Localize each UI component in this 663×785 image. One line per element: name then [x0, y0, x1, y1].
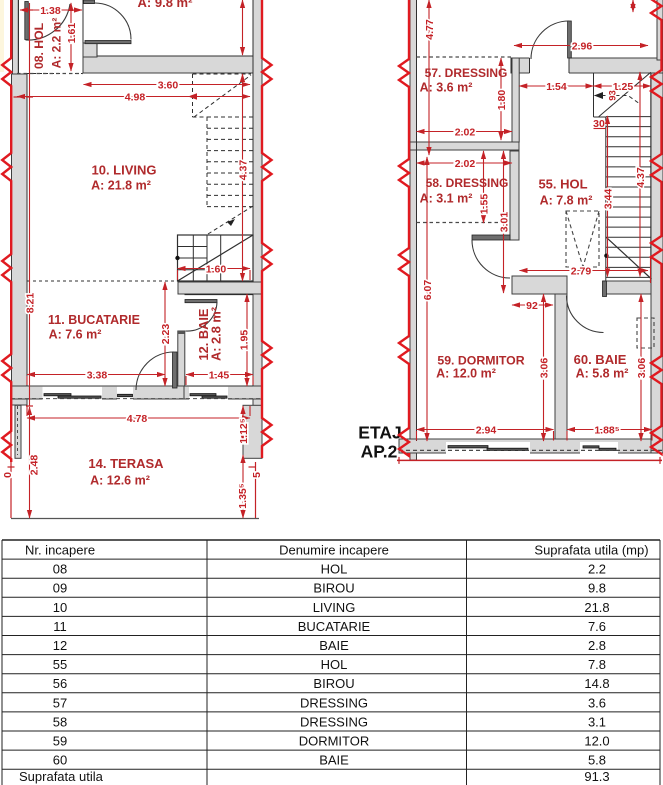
svg-text:1.55: 1.55	[478, 194, 490, 215]
svg-text:A: 21.8 m²: A: 21.8 m²	[91, 179, 151, 193]
svg-text:1.95: 1.95	[238, 330, 250, 351]
svg-text:1.61: 1.61	[66, 23, 78, 44]
svg-text:A: 2.8 m²: A: 2.8 m²	[209, 307, 224, 361]
svg-text:A: 7.6 m²: A: 7.6 m²	[49, 328, 102, 342]
svg-text:3.44: 3.44	[602, 189, 614, 210]
svg-text:Nr. incapere: Nr. incapere	[25, 543, 95, 558]
svg-text:2.23: 2.23	[160, 324, 172, 345]
svg-text:1.80: 1.80	[496, 90, 508, 111]
svg-text:57: 57	[53, 695, 67, 710]
svg-text:A: 2.2 m²: A: 2.2 m²	[49, 18, 63, 69]
svg-text:0: 0	[2, 472, 14, 478]
svg-text:56: 56	[53, 676, 67, 691]
svg-text:2.79: 2.79	[571, 265, 592, 277]
svg-text:ETAJ: ETAJ	[358, 423, 401, 443]
svg-text:2.48: 2.48	[28, 455, 40, 476]
svg-text:3.6: 3.6	[588, 695, 606, 710]
svg-text:12: 12	[53, 638, 67, 653]
svg-text:4.37: 4.37	[635, 167, 647, 188]
svg-text:1.45: 1.45	[209, 369, 230, 381]
svg-text:1.35⁵: 1.35⁵	[237, 483, 249, 508]
svg-text:08: 08	[53, 562, 67, 577]
svg-text:BIROU: BIROU	[313, 676, 354, 691]
svg-text:12.0: 12.0	[584, 734, 609, 749]
svg-text:58: 58	[53, 714, 67, 729]
svg-text:21.8: 21.8	[584, 600, 609, 615]
svg-text:A: 5.8 m²: A: 5.8 m²	[576, 367, 629, 381]
svg-text:A: 12.0 m²: A: 12.0 m²	[436, 367, 496, 381]
svg-text:1.38: 1.38	[40, 5, 61, 17]
svg-text:92: 92	[526, 300, 538, 312]
svg-text:09: 09	[53, 581, 67, 596]
svg-text:3.1: 3.1	[588, 714, 606, 729]
svg-text:A: 7.8 m²: A: 7.8 m²	[540, 194, 593, 208]
svg-text:8.21: 8.21	[24, 293, 36, 314]
svg-text:HOL: HOL	[321, 562, 348, 577]
svg-text:5: 5	[251, 472, 263, 478]
svg-text:3.60: 3.60	[158, 79, 179, 91]
svg-text:08. HOL: 08. HOL	[32, 22, 46, 69]
svg-text:DRESSING: DRESSING	[300, 714, 368, 729]
svg-text:59. DORMITOR: 59. DORMITOR	[437, 353, 524, 367]
svg-text:14.8: 14.8	[584, 676, 609, 691]
svg-text:2.96: 2.96	[572, 40, 593, 52]
svg-text:DRESSING: DRESSING	[300, 695, 368, 710]
svg-text:4.77: 4.77	[424, 19, 436, 40]
svg-text:93: 93	[607, 90, 618, 101]
svg-text:BAIE: BAIE	[319, 638, 349, 653]
svg-text:4.78: 4.78	[127, 413, 148, 425]
svg-text:2.02: 2.02	[455, 126, 476, 138]
svg-text:Denumire incapere: Denumire incapere	[279, 543, 389, 558]
svg-text:10. LIVING: 10. LIVING	[91, 163, 156, 178]
svg-text:5.8: 5.8	[588, 753, 606, 768]
svg-text:2.2: 2.2	[588, 562, 606, 577]
svg-text:3.01: 3.01	[498, 212, 510, 233]
svg-text:A: 12.6 m²: A: 12.6 m²	[90, 474, 150, 488]
svg-text:1.12⁵: 1.12⁵	[238, 418, 250, 443]
svg-text:11. BUCATARIE: 11. BUCATARIE	[48, 313, 140, 327]
svg-text:59: 59	[53, 734, 67, 749]
svg-text:4.98: 4.98	[125, 91, 146, 103]
svg-text:2.8: 2.8	[588, 638, 606, 653]
svg-text:2.02: 2.02	[455, 158, 476, 170]
svg-text:DORMITOR: DORMITOR	[299, 734, 370, 749]
svg-text:A: 3.1 m²: A: 3.1 m²	[420, 192, 473, 206]
svg-text:BUCATARIE: BUCATARIE	[298, 619, 371, 634]
svg-text:A: 9.8 m²: A: 9.8 m²	[138, 0, 194, 10]
svg-text:Suprafata utila (mp): Suprafata utila (mp)	[534, 543, 648, 558]
svg-text:7.8: 7.8	[588, 657, 606, 672]
svg-text:AP.2: AP.2	[361, 442, 398, 462]
svg-text:55. HOL: 55. HOL	[538, 177, 587, 192]
svg-text:1.60: 1.60	[206, 263, 227, 275]
svg-text:11: 11	[53, 619, 67, 634]
svg-text:58. DRESSING: 58. DRESSING	[426, 176, 509, 190]
svg-text:3.38: 3.38	[87, 369, 108, 381]
svg-text:7.6: 7.6	[588, 619, 606, 634]
svg-text:BIROU: BIROU	[313, 581, 354, 596]
svg-text:3.06: 3.06	[538, 358, 550, 379]
svg-text:55: 55	[53, 657, 67, 672]
svg-text:1.54: 1.54	[546, 81, 567, 93]
svg-text:14. TERASA: 14. TERASA	[88, 456, 164, 471]
svg-text:2.94: 2.94	[476, 424, 497, 436]
svg-text:HOL: HOL	[321, 657, 348, 672]
svg-text:BAIE: BAIE	[319, 753, 349, 768]
svg-text:10: 10	[53, 600, 67, 615]
svg-text:Suprafata utila: Suprafata utila	[19, 769, 104, 784]
svg-text:60. BAIE: 60. BAIE	[574, 352, 627, 367]
svg-text:60: 60	[53, 753, 67, 768]
svg-text:57. DRESSING: 57. DRESSING	[425, 66, 508, 80]
svg-text:6.07: 6.07	[422, 280, 434, 301]
svg-text:1.88⁵: 1.88⁵	[594, 424, 619, 436]
svg-text:3.06: 3.06	[636, 358, 648, 379]
svg-text:A: 3.6 m²: A: 3.6 m²	[420, 81, 473, 95]
svg-text:91.3: 91.3	[584, 769, 609, 784]
svg-text:9.8: 9.8	[588, 581, 606, 596]
svg-text:4.37: 4.37	[237, 160, 249, 181]
svg-text:LIVING: LIVING	[313, 600, 356, 615]
